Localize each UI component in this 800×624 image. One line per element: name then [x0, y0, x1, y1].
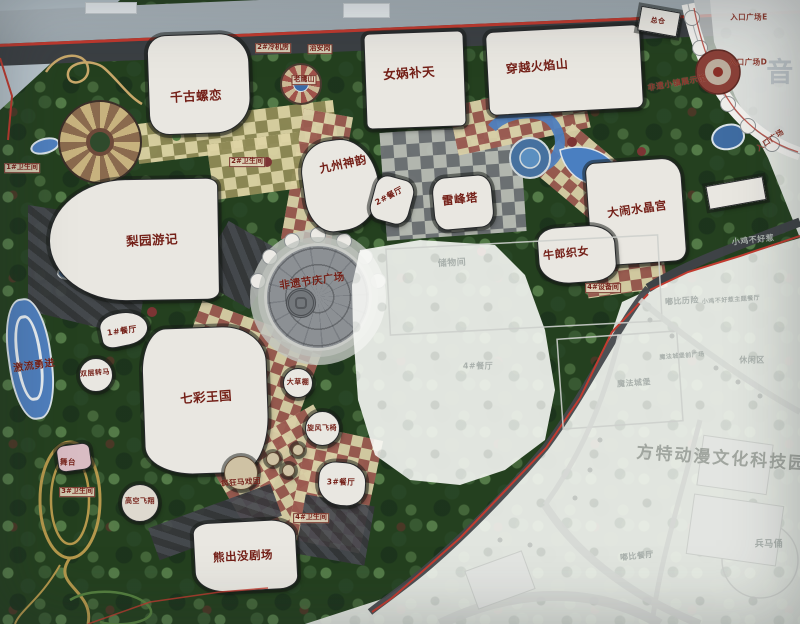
building-stage — [55, 442, 92, 473]
carousel-center — [86, 128, 114, 156]
plaza-medallion — [286, 288, 316, 318]
building-chuanyue-huoyanshan — [485, 24, 644, 116]
ride-crazy-circus — [224, 456, 258, 490]
light-panel — [85, 2, 137, 14]
tree — [262, 157, 272, 167]
park-map-photo: 千古螺恋女娲补天穿越火焰山九州神韵梨园游记雷峰塔大闹水晶宫牛郎织女七彩王国熊出没… — [0, 0, 800, 624]
kiosk — [282, 464, 295, 477]
building-leifengta — [431, 173, 495, 231]
building-qiangu-luolian — [146, 32, 251, 135]
ride-big-shed — [283, 368, 313, 398]
kiosk — [266, 452, 280, 466]
plaza-pavilion — [250, 273, 266, 289]
tree — [147, 307, 157, 317]
building-qicai-wangguo — [140, 325, 270, 476]
building-niulang-zhinv — [536, 223, 618, 285]
light-panel — [343, 3, 390, 18]
ride-wave-swinger — [305, 411, 340, 446]
building-nvwa-butian — [363, 30, 466, 129]
kiosk — [292, 444, 304, 456]
tree — [637, 147, 646, 156]
building-xiongchumo-theater — [192, 518, 299, 593]
eagle-hill-pond — [293, 76, 309, 92]
ride-double-carousel — [79, 358, 113, 392]
tree — [567, 137, 577, 147]
ride-sky-flyer — [121, 484, 159, 522]
building-liyuan-youji — [48, 178, 220, 303]
